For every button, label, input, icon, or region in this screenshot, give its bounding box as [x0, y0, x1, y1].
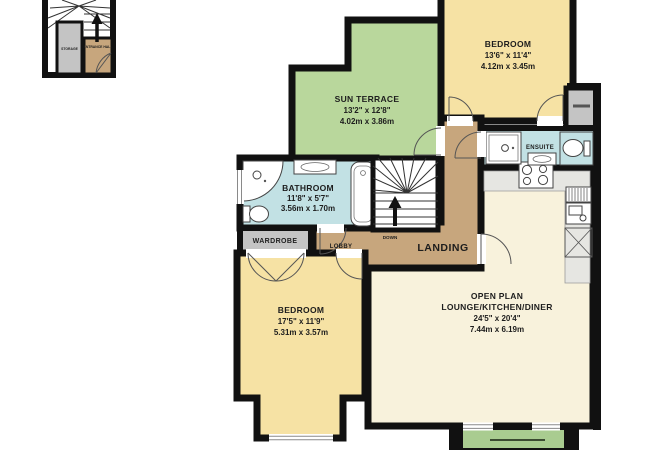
ensuite-label: ENSUITE	[526, 145, 554, 151]
landing-label: LANDING	[417, 242, 468, 254]
bathroom-sink-icon	[294, 160, 336, 174]
bathroom-name: BATHROOM	[282, 183, 334, 193]
bedroom-bl-metric: 5.31m x 3.57m	[274, 328, 328, 337]
lobby-label: LOBBY	[330, 244, 353, 250]
room-sun-terrace	[292, 20, 441, 164]
sun-terrace-imperial: 13'2" x 12'8"	[344, 106, 391, 115]
bathroom-toilet-icon	[243, 206, 269, 222]
ensuite-sink-icon	[528, 153, 556, 165]
label-bathroom: BATHROOM 11'8" x 5'7" 3.56m x 1.70m	[281, 183, 335, 213]
wall-right	[593, 88, 601, 430]
bedroom-bl-name: BEDROOM	[278, 305, 325, 315]
open-plan-line1: OPEN PLAN	[471, 291, 523, 301]
inset-storage-label: STORAGE	[61, 47, 78, 51]
room-bedroom-top-right	[441, 0, 573, 121]
stairs-main	[373, 158, 438, 230]
bathroom-imperial: 11'8" x 5'7"	[287, 194, 329, 203]
sun-terrace-name: SUN TERRACE	[335, 94, 400, 104]
wardrobe-label: WARDROBE	[253, 238, 298, 245]
hob-icon	[519, 162, 553, 188]
kitchen-vent-unit-icon	[566, 187, 591, 202]
bathroom-metric: 3.56m x 1.70m	[281, 204, 335, 213]
stairs-down-label: DOWN	[383, 235, 398, 240]
sun-terrace-metric: 4.02m x 3.86m	[340, 117, 394, 126]
inset-storage: STORAGE	[57, 22, 82, 74]
wall-segment	[449, 424, 463, 450]
open-plan-metric: 7.44m x 6.19m	[470, 325, 524, 334]
open-plan-imperial: 24'5" x 20'4"	[474, 314, 521, 323]
bedroom-bl-imperial: 17'5" x 11'9"	[278, 317, 325, 326]
bedroom-tr-name: BEDROOM	[485, 39, 532, 49]
inset-ground-floor: STORAGE ENTRANCE HALL	[45, 0, 113, 75]
balcony-strip	[455, 428, 577, 450]
bedroom-tr-metric: 4.12m x 3.45m	[481, 62, 535, 71]
label-bedroom-top-right: BEDROOM 13'6" x 11'4" 4.12m x 3.45m	[481, 39, 535, 71]
wall-segment	[564, 424, 578, 450]
window-lounge-right	[532, 423, 560, 431]
room-bedroom-bottom-left	[237, 253, 365, 438]
floorplan-canvas: SUN TERRACE 13'2" x 12'8" 4.02m x 3.86m …	[0, 0, 650, 450]
bedroom-tr-imperial: 13'6" x 11'4"	[485, 51, 532, 60]
ensuite-shower-icon	[486, 132, 521, 164]
window-bathroom	[235, 170, 244, 204]
label-bedroom-bottom-left: BEDROOM 17'5" x 11'9" 5.31m x 3.57m	[274, 305, 328, 337]
window-lounge-left	[463, 423, 493, 431]
kitchen-sink-icon	[566, 203, 591, 224]
label-sun-terrace: SUN TERRACE 13'2" x 12'8" 4.02m x 3.86m	[335, 94, 400, 126]
window-bay-bedroom	[269, 434, 333, 442]
cupboard-top-right	[566, 88, 597, 128]
inset-entrance-label: ENTRANCE HALL	[84, 45, 113, 49]
inset-entrance-hall: ENTRANCE HALL	[84, 38, 113, 74]
floorplan-svg: SUN TERRACE 13'2" x 12'8" 4.02m x 3.86m …	[0, 0, 650, 450]
open-plan-line2: LOUNGE/KITCHEN/DINER	[441, 302, 552, 312]
